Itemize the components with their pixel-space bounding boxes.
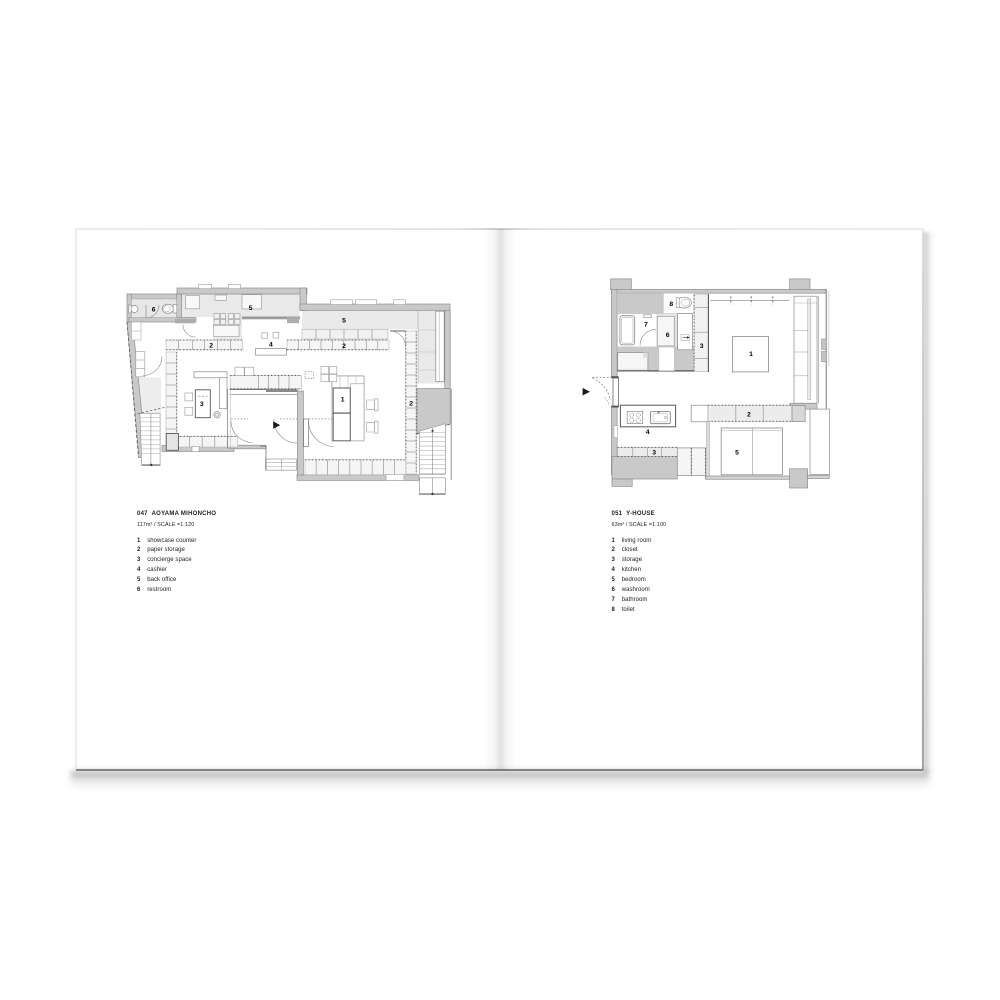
svg-text:6: 6 [152,306,156,313]
svg-text:1: 1 [749,351,753,358]
svg-text:4: 4 [646,429,650,436]
svg-text:2: 2 [409,401,413,408]
svg-text:6: 6 [666,332,670,339]
svg-text:5: 5 [342,318,346,325]
svg-text:2: 2 [747,412,751,419]
svg-text:1: 1 [341,396,345,403]
svg-text:5: 5 [249,305,253,312]
svg-text:3: 3 [700,343,704,350]
svg-text:2: 2 [342,343,346,350]
svg-text:8: 8 [669,301,673,308]
svg-text:7: 7 [644,322,648,329]
svg-text:4: 4 [269,341,273,348]
svg-text:5: 5 [735,449,739,456]
svg-text:3: 3 [200,401,204,408]
svg-text:2: 2 [209,343,213,350]
svg-text:3: 3 [652,449,656,456]
